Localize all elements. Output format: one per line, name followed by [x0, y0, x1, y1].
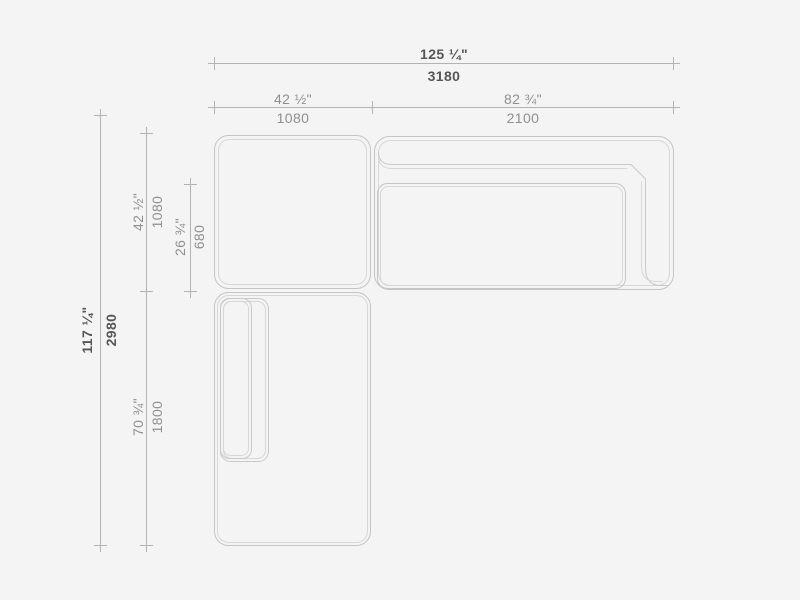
chaise-armrest-cushion: [221, 299, 252, 459]
right-width-inches-label: 82 ¾": [504, 92, 542, 106]
seat-depth-mm-label: 680: [192, 225, 206, 250]
dim-line-segment-heights: [140, 127, 153, 552]
drawing-canvas: [0, 0, 800, 600]
corner-height-mm-label: 1080: [150, 196, 164, 229]
total-width-inches-label: 125 ¼": [420, 47, 468, 61]
sofa-seat-cushion: [378, 184, 626, 289]
right-width-mm-label: 2100: [507, 111, 540, 125]
chaise-armrest-housing: [221, 299, 269, 462]
sofa-dimension-drawing: 125 ¼" 3180 42 ½" 1080 82 ¾" 2100 117 ¼"…: [0, 0, 800, 600]
total-height-mm-label: 2980: [104, 314, 118, 347]
left-width-mm-label: 1080: [277, 111, 310, 125]
corner-module-outline: [215, 136, 371, 289]
chaise-height-mm-label: 1800: [150, 401, 164, 434]
armrest-inner-line: [642, 182, 664, 282]
sofa-module-outline: [375, 137, 674, 290]
chaise-module-outline: [215, 293, 371, 546]
total-height-inches-label: 117 ¼": [80, 306, 94, 353]
dimension-lines: [94, 57, 680, 552]
corner-height-inches-label: 42 ½": [131, 193, 145, 231]
chaise-height-inches-label: 70 ¾": [131, 398, 145, 436]
left-width-inches-label: 42 ½": [274, 92, 312, 106]
seat-depth-inches-label: 26 ¾": [173, 218, 187, 256]
backrest-armrest-line: [379, 152, 669, 286]
backrest-inner-line: [379, 156, 628, 169]
total-width-mm-label: 3180: [428, 69, 461, 83]
